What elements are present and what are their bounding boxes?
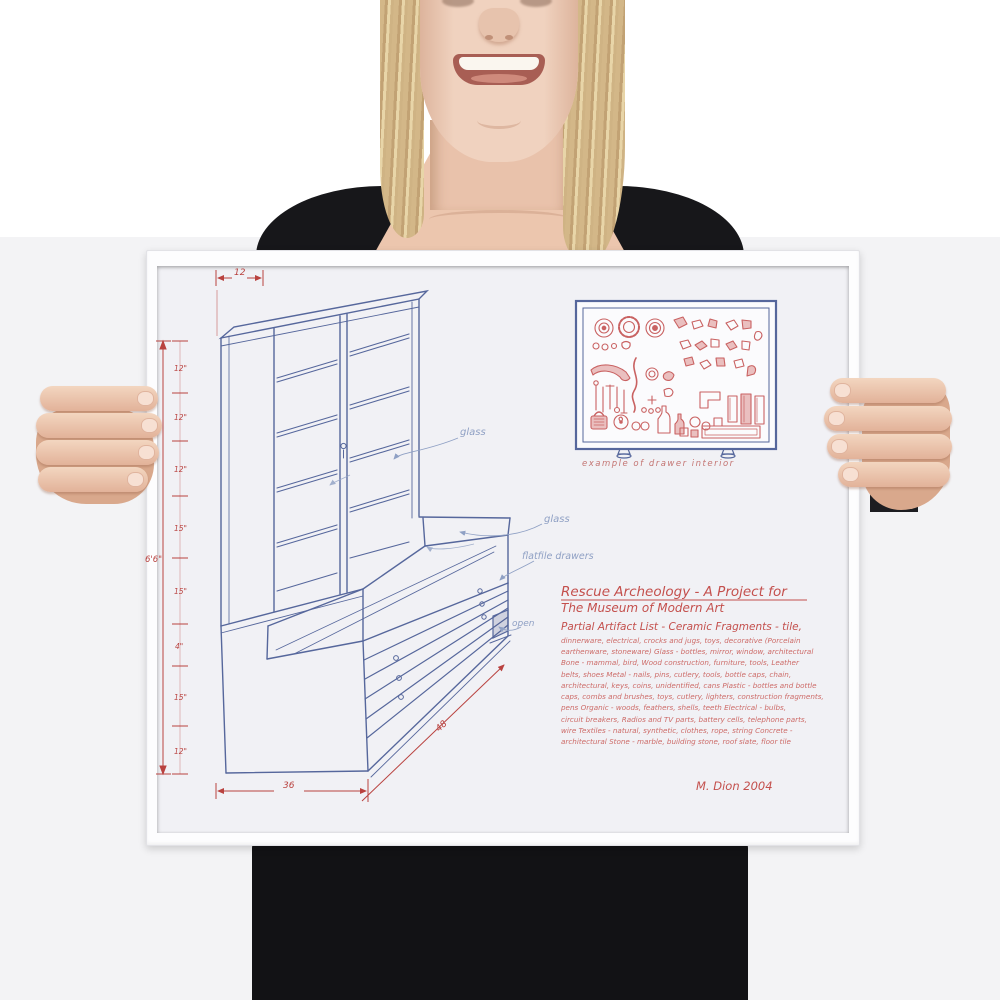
right-hand: [810, 370, 952, 518]
list-line: architectural Stone - marble, building s…: [561, 737, 791, 746]
glass-lower-label: glass: [544, 514, 570, 525]
fingernail: [137, 391, 154, 406]
list-intro: Partial Artifact List - Ceramic Fragment…: [561, 621, 802, 633]
list-line: Bone - mammal, bird, Wood construction, …: [561, 658, 800, 667]
dim-seg-4: 15": [174, 587, 187, 596]
finger: [36, 440, 159, 465]
face-shadow-right: [544, 0, 578, 150]
flatfile-chest: [221, 583, 511, 777]
smiling-mouth: [453, 54, 545, 85]
product-photo: 12 6'6" 12" 12" 12" 15" 15" 4" 15" 12" 3…: [0, 0, 1000, 1000]
dim-top-label: 12: [234, 268, 246, 278]
list-line: dinnerware, electrical, crocks and jugs,…: [561, 636, 801, 645]
left-hand: [36, 386, 174, 508]
finger: [830, 378, 946, 403]
hair-left: [380, 0, 424, 238]
face-shadow-left: [420, 0, 454, 150]
finger: [40, 386, 158, 411]
drawer-interior-panel: [576, 301, 776, 458]
finger: [827, 434, 952, 459]
panel-caption: example of drawer interior: [582, 459, 735, 469]
dim-seg-5: 4": [175, 642, 183, 651]
list-line: caps, combs and brushes, toys, cutlery, …: [561, 692, 824, 701]
finger: [36, 413, 162, 438]
dim-seg-2: 12": [174, 465, 187, 474]
fingernail: [127, 472, 144, 487]
lower-lip: [471, 74, 527, 83]
text-block: Rescue Archeology - A Project for The Mu…: [560, 584, 824, 793]
list-line: architectural, keys, coins, unidentified…: [561, 681, 817, 690]
dimension-labels: 12 6'6" 12" 12" 12" 15" 15" 4" 15" 12" 3…: [145, 268, 450, 791]
person-face: [420, 0, 578, 162]
picture-frame: 12 6'6" 12" 12" 12" 15" 15" 4" 15" 12" 3…: [146, 250, 860, 846]
clavicle-shading: [429, 210, 570, 229]
glass-upper-label: glass: [460, 427, 486, 438]
nostril-left: [485, 35, 493, 40]
shirt-torso: [252, 838, 748, 1000]
nose: [479, 8, 519, 42]
poster-title-line2: The Museum of Modern Art: [561, 601, 725, 615]
dim-total-label: 6'6": [145, 555, 162, 565]
nostril-right: [505, 35, 513, 40]
fingernail: [828, 411, 845, 426]
dim-depth-label: 48: [434, 719, 449, 734]
dim-bottom-label: 36: [283, 781, 295, 791]
teeth: [459, 57, 539, 70]
poster-title-line1: Rescue Archeology - A Project for: [561, 584, 788, 600]
list-line: wire Textiles - natural, synthetic, clot…: [561, 726, 793, 735]
list-line: pens Organic - woods, feathers, shells, …: [560, 703, 786, 712]
artwork-drawing: 12 6'6" 12" 12" 12" 15" 15" 4" 15" 12" 3…: [144, 250, 834, 816]
fingernail: [138, 445, 155, 460]
finger: [38, 467, 148, 492]
dim-seg-1: 12": [174, 413, 187, 422]
fingernail: [842, 467, 859, 482]
pencil-leaders: [330, 438, 542, 630]
fingernail: [834, 383, 851, 398]
dim-seg-7: 12": [174, 747, 187, 756]
finger: [824, 406, 952, 431]
list-line: earthenware, stoneware) Glass - bottles,…: [561, 647, 813, 656]
fingernail: [831, 439, 848, 454]
dim-seg-3: 15": [174, 524, 187, 533]
glass-box: [267, 517, 510, 659]
dim-seg-0: 12": [174, 364, 187, 373]
chin-crease: [477, 112, 521, 129]
finger: [838, 462, 950, 487]
list-line: circuit breakers, Radios and TV parts, b…: [561, 715, 807, 724]
open-label: open: [512, 619, 535, 629]
fingernail: [141, 418, 158, 433]
flatfile-label: flatfile drawers: [522, 551, 594, 562]
dim-seg-6: 15": [174, 693, 187, 702]
dimensions: [156, 270, 504, 802]
artist-signature: M. Dion 2004: [696, 779, 773, 793]
list-line: belts, shoes Metal - nails, pins, cutler…: [561, 670, 791, 679]
